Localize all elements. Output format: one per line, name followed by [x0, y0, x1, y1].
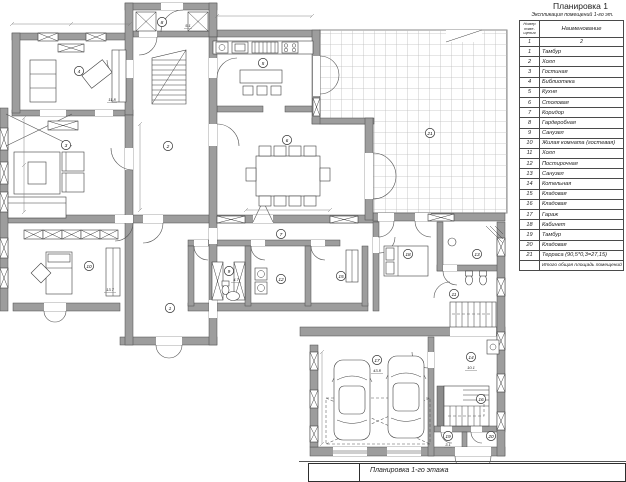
table-row: 6Столовая — [520, 97, 624, 107]
room-marker-16: 16 — [476, 394, 485, 403]
table-row: 11Холл — [520, 148, 624, 158]
floor-plan-page: { "page": { "top_title": "Планировка 1",… — [0, 0, 626, 481]
table-row: 16Кладовая — [520, 199, 624, 209]
table-row: 7Коридор — [520, 108, 624, 118]
room-marker-18: 18 — [403, 249, 412, 258]
room-table-body: 1Тамбур2Холл3Гостиная4Библиотека5Кухня6С… — [520, 47, 624, 271]
table-row: 13Санузел — [520, 169, 624, 179]
svg-text:14: 14 — [468, 355, 474, 361]
svg-text:20: 20 — [487, 434, 494, 440]
room-marker-7: 7 — [276, 229, 285, 238]
basement-staircase — [437, 386, 489, 426]
floor-plan-drawing: 11.8 5.1 13.7 4.7 43.8 10.1 3.1 1 2 3 4 … — [0, 0, 520, 481]
table-subtitle: Экспликация помещений 1-го эт. — [519, 12, 626, 18]
svg-text:7: 7 — [280, 232, 283, 238]
room-marker-12: 12 — [276, 274, 285, 283]
title-block-line — [299, 461, 626, 462]
table-total-row: Итого общая площадь помещений — [520, 260, 624, 270]
title-block-stamp-cell — [309, 464, 360, 481]
col-header-name: Наименование — [540, 21, 624, 38]
table-row: 9Санузел — [520, 128, 624, 138]
title-block: Планировка 1-го этажа — [308, 463, 626, 482]
room-table: Номер поме- щения Наименование 1 2 1Тамб… — [519, 20, 624, 271]
svg-text:21: 21 — [426, 131, 433, 137]
room-marker-11: 11 — [449, 289, 458, 298]
svg-text:18: 18 — [405, 252, 411, 258]
svg-text:8: 8 — [161, 20, 164, 26]
room-marker-1: 1 — [165, 303, 174, 312]
svg-text:4.7: 4.7 — [233, 277, 239, 282]
svg-text:1: 1 — [169, 306, 172, 312]
svg-text:4: 4 — [78, 69, 81, 75]
svg-text:5.1: 5.1 — [185, 23, 191, 28]
room-marker-4: 4 — [74, 66, 83, 75]
table-row: 20Кладовая — [520, 240, 624, 250]
table-row: 3Гостиная — [520, 67, 624, 77]
table-row: 12Постирочная — [520, 159, 624, 169]
car-2 — [386, 356, 426, 438]
living-room-furniture — [8, 121, 84, 218]
svg-text:3.1: 3.1 — [445, 442, 451, 447]
room-marker-3: 3 — [61, 140, 70, 149]
room-marker-10: 10 — [84, 261, 93, 270]
svg-text:15: 15 — [338, 274, 344, 280]
table-row: 18Кабинет — [520, 220, 624, 230]
table-row: 14Котельная — [520, 179, 624, 189]
svg-text:9: 9 — [228, 269, 231, 275]
svg-text:17: 17 — [374, 358, 380, 364]
svg-text:11: 11 — [452, 292, 457, 298]
table-row: 21Терраса (90,5*0,3=27,15) — [520, 250, 624, 260]
svg-text:6: 6 — [286, 138, 289, 144]
table-row: 5Кухня — [520, 87, 624, 97]
svg-text:11.8: 11.8 — [108, 97, 116, 102]
svg-text:16: 16 — [478, 397, 484, 403]
room-marker-13: 13 — [472, 249, 481, 258]
room-marker-17: 17 — [372, 355, 381, 364]
car-1 — [332, 360, 372, 440]
room-explication: Экспликация помещений 1-го эт. Номер пом… — [519, 12, 626, 271]
table-row: 2Холл — [520, 57, 624, 67]
dining-furniture — [246, 146, 330, 206]
svg-text:13.7: 13.7 — [106, 287, 115, 292]
table-row: 17Гараж — [520, 210, 624, 220]
main-staircase — [152, 50, 186, 104]
room-marker-5: 5 — [258, 58, 267, 67]
col-header-number: Номер поме- щения — [520, 21, 540, 38]
room-marker-9: 9 — [224, 266, 233, 275]
kitchen-furniture — [213, 41, 313, 95]
room-marker-19: 19 — [443, 431, 452, 440]
subheader-2: 2 — [540, 38, 624, 47]
room-marker-8: 8 — [157, 17, 166, 26]
svg-text:2: 2 — [166, 144, 170, 150]
table-row: 1Тамбур — [520, 47, 624, 57]
subheader-1: 1 — [520, 38, 540, 47]
hall-staircase — [450, 302, 496, 327]
sheet-title: Планировка 1-го этажа — [360, 464, 625, 481]
svg-text:5: 5 — [262, 61, 265, 67]
svg-text:10.1: 10.1 — [467, 365, 475, 370]
room-marker-14: 14 — [466, 352, 475, 361]
svg-text:10: 10 — [86, 264, 92, 270]
drawing-title-top: Планировка 1 — [553, 1, 626, 11]
table-row: 8Гардеробная — [520, 118, 624, 128]
table-row: 10Жилая комната (гостевая) — [520, 138, 624, 148]
table-row: 15Кладовая — [520, 189, 624, 199]
table-row: 19Тамбур — [520, 230, 624, 240]
room-marker-15: 15 — [336, 271, 345, 280]
svg-text:43.8: 43.8 — [373, 368, 382, 373]
table-row: 4Библиотека — [520, 77, 624, 87]
svg-text:3: 3 — [65, 143, 68, 149]
room-marker-20: 20 — [486, 431, 495, 440]
room-marker-2: 2 — [163, 141, 172, 150]
room-marker-6: 6 — [282, 135, 291, 144]
svg-text:19: 19 — [445, 434, 451, 440]
room-marker-21: 21 — [425, 128, 434, 137]
svg-text:12: 12 — [278, 277, 284, 283]
svg-text:13: 13 — [474, 252, 480, 258]
